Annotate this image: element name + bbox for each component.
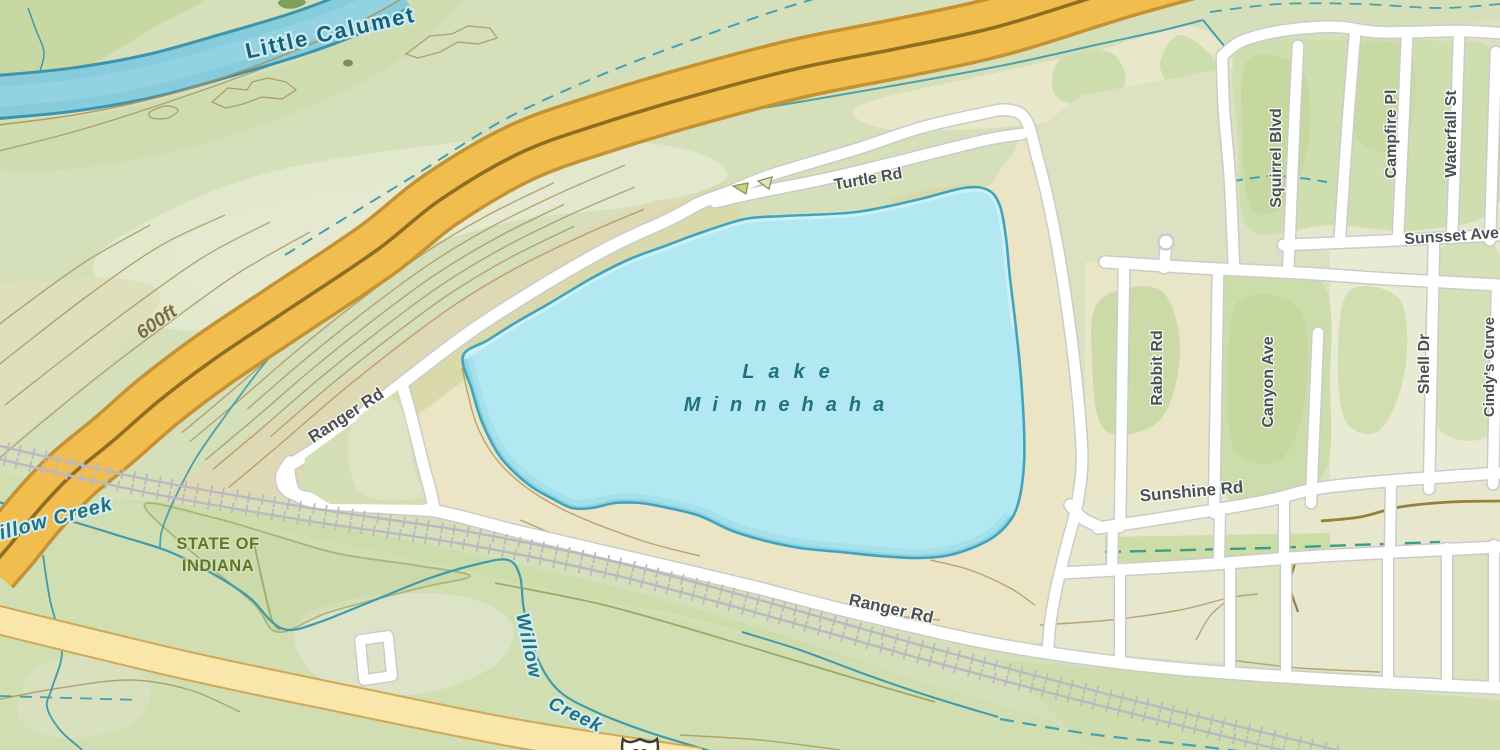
svg-text:Waterfall St: Waterfall St	[1443, 90, 1460, 178]
svg-text:Minnehaha: Minnehaha	[684, 394, 896, 416]
svg-text:Cindy's Curve: Cindy's Curve	[1481, 317, 1498, 417]
svg-text:20: 20	[632, 746, 649, 750]
svg-text:Lake: Lake	[742, 361, 844, 383]
svg-text:Canyon Ave: Canyon Ave	[1260, 336, 1277, 427]
svg-text:INDIANA: INDIANA	[182, 557, 254, 575]
svg-text:Shell Dr: Shell Dr	[1416, 334, 1433, 394]
svg-text:Squirrel Blvd: Squirrel Blvd	[1268, 108, 1285, 208]
svg-text:Campfire Pl: Campfire Pl	[1383, 90, 1400, 179]
svg-text:Rabbit Rd: Rabbit Rd	[1149, 330, 1166, 406]
svg-text:STATE OF: STATE OF	[176, 535, 259, 553]
